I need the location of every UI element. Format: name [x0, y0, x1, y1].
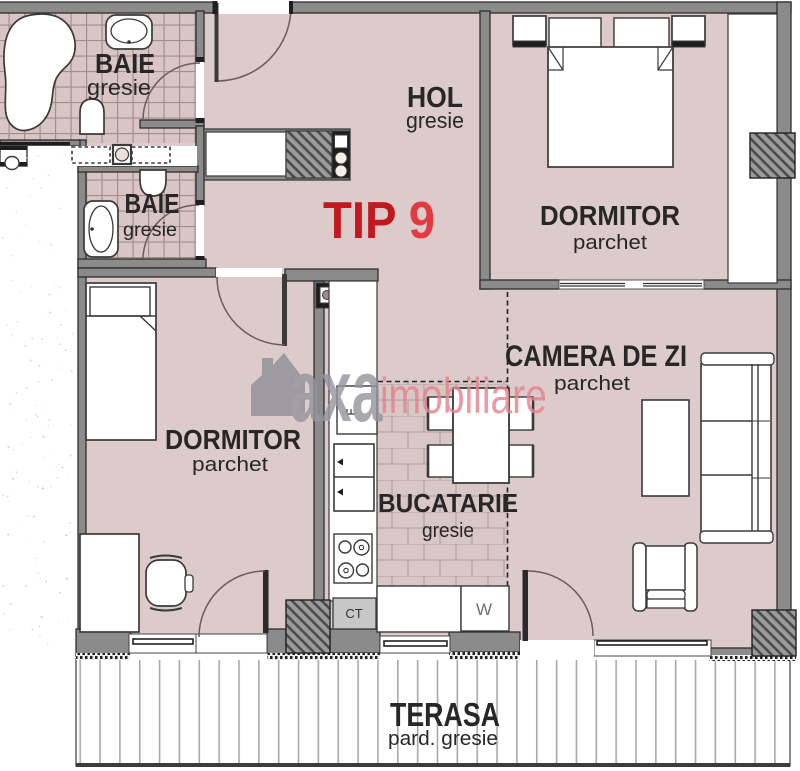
svg-text:W: W [476, 600, 492, 619]
svg-text:DORMITOR: DORMITOR [165, 424, 301, 455]
svg-text:DORMITOR: DORMITOR [540, 200, 680, 231]
svg-text:BUCATARIE: BUCATARIE [378, 488, 518, 518]
svg-text:gresie: gresie [123, 220, 177, 241]
svg-text:parchet: parchet [192, 454, 268, 476]
svg-text:gresie: gresie [422, 520, 474, 542]
svg-text:parchet: parchet [554, 373, 630, 395]
svg-text:imobiliare: imobiliare [380, 367, 547, 424]
svg-text:CT: CT [345, 606, 362, 621]
svg-text:BAIE: BAIE [125, 188, 180, 219]
svg-text:gresie: gresie [406, 108, 464, 133]
svg-text:parchet: parchet [573, 232, 647, 254]
svg-text:pard. gresie: pard. gresie [388, 728, 498, 750]
svg-text:gresie: gresie [87, 75, 151, 100]
svg-text:axa: axa [290, 341, 383, 440]
svg-text:TIP 9: TIP 9 [323, 192, 435, 250]
